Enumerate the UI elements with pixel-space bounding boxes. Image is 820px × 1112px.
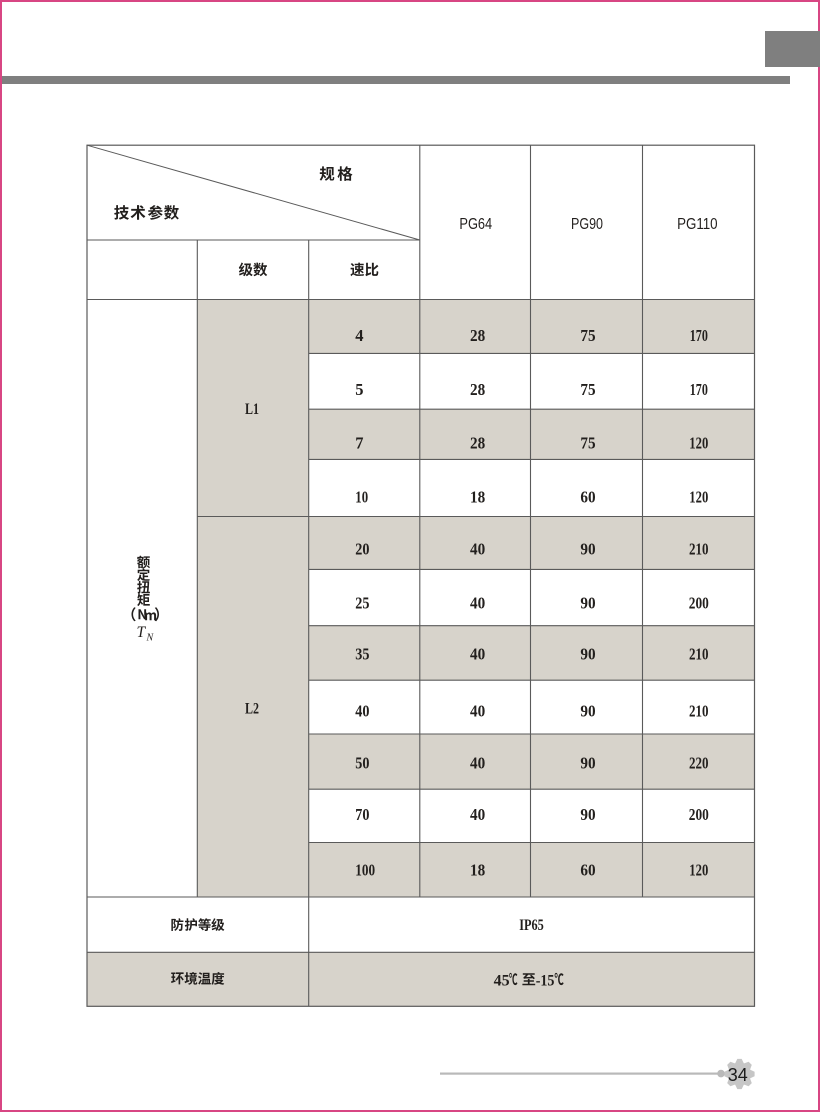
svg-text:IP65: IP65 [519, 917, 544, 934]
svg-text:40: 40 [470, 540, 485, 559]
svg-text:210: 210 [689, 701, 709, 720]
svg-text:60: 60 [580, 861, 595, 880]
svg-text:200: 200 [689, 594, 709, 613]
svg-text:70: 70 [355, 805, 369, 824]
svg-text:18: 18 [470, 861, 485, 880]
svg-text:75: 75 [580, 380, 595, 399]
svg-text:100: 100 [355, 861, 375, 880]
svg-text:75: 75 [580, 433, 595, 452]
svg-text:90: 90 [580, 594, 595, 613]
svg-text:28: 28 [470, 326, 485, 345]
svg-text:170: 170 [690, 380, 708, 399]
svg-text:5: 5 [355, 380, 363, 399]
svg-text:34: 34 [728, 1065, 748, 1085]
svg-text:60: 60 [580, 487, 595, 506]
svg-text:28: 28 [470, 380, 485, 399]
svg-text:18: 18 [470, 487, 485, 506]
svg-text:T: T [137, 624, 147, 641]
svg-text:210: 210 [689, 644, 709, 663]
svg-text:90: 90 [580, 805, 595, 824]
svg-text:N: N [146, 633, 155, 644]
svg-text:7: 7 [355, 433, 363, 452]
svg-text:220: 220 [689, 753, 709, 772]
svg-text:210: 210 [689, 540, 709, 559]
svg-text:120: 120 [689, 433, 708, 452]
svg-text:4: 4 [355, 326, 363, 345]
svg-text:PG90: PG90 [571, 216, 603, 233]
svg-text:28: 28 [470, 433, 485, 452]
svg-text:45: 45 [494, 972, 510, 989]
svg-text:L2: L2 [245, 700, 259, 717]
svg-text:90: 90 [580, 540, 595, 559]
svg-text:40: 40 [470, 805, 485, 824]
svg-text:10: 10 [355, 487, 368, 506]
svg-text:75: 75 [580, 326, 595, 345]
svg-text:40: 40 [470, 644, 485, 663]
svg-text:-15: -15 [536, 972, 555, 989]
svg-text:PG64: PG64 [459, 216, 492, 233]
svg-text:20: 20 [355, 540, 369, 559]
svg-text:90: 90 [580, 644, 595, 663]
svg-text:40: 40 [470, 753, 485, 772]
svg-text:170: 170 [690, 326, 708, 345]
svg-text:40: 40 [470, 701, 485, 720]
svg-text:40: 40 [470, 594, 485, 613]
svg-text:90: 90 [580, 753, 595, 772]
svg-text:50: 50 [355, 753, 369, 772]
svg-text:L1: L1 [245, 401, 259, 418]
svg-text:120: 120 [689, 861, 708, 880]
svg-text:90: 90 [580, 701, 595, 720]
svg-text:120: 120 [689, 487, 708, 506]
svg-text:PG110: PG110 [677, 216, 718, 233]
svg-text:40: 40 [355, 701, 369, 720]
svg-text:200: 200 [689, 805, 709, 824]
svg-text:35: 35 [355, 644, 369, 663]
svg-text:25: 25 [355, 594, 369, 613]
